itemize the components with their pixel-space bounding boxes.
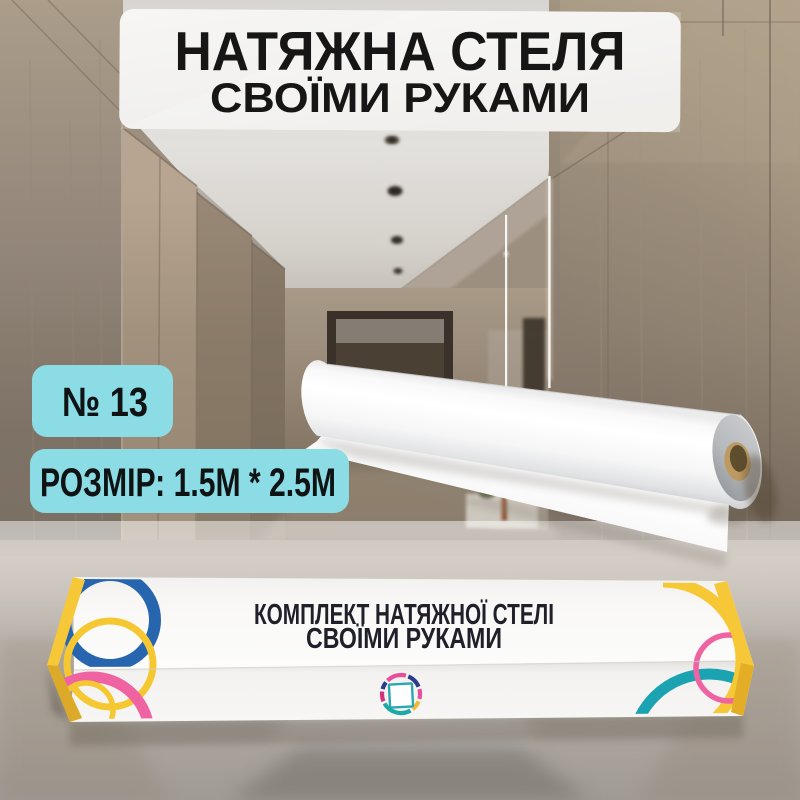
svg-text:№ 13: № 13 — [62, 379, 148, 425]
svg-text:РОЗМІР: 1.5М * 2.5М: РОЗМІР: 1.5М * 2.5М — [40, 461, 336, 505]
svg-text:НАТЯЖНА СТЕЛЯ: НАТЯЖНА СТЕЛЯ — [175, 20, 626, 82]
svg-text:СВОЇМИ РУКАМИ: СВОЇМИ РУКАМИ — [210, 74, 590, 121]
svg-text:СВОЇМИ РУКАМИ: СВОЇМИ РУКАМИ — [306, 622, 502, 655]
